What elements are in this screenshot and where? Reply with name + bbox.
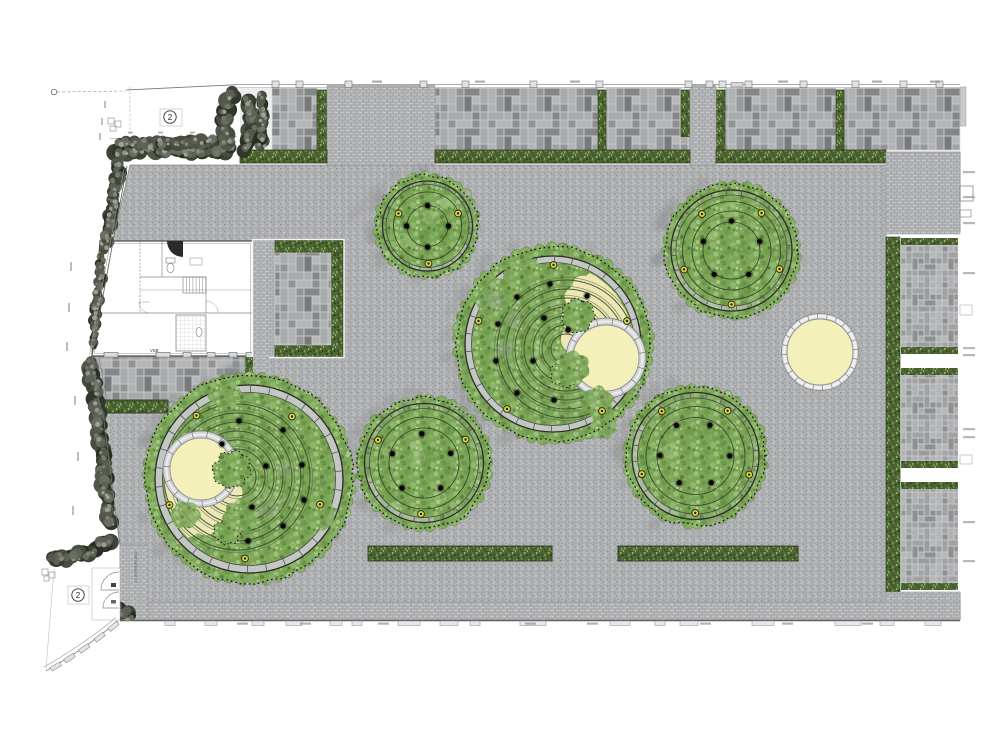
svg-text:2: 2 (168, 113, 173, 122)
svg-text:2: 2 (76, 591, 81, 600)
svg-text:VSB: VSB (150, 348, 159, 353)
svg-text:1:2 BURGERZONE: 1:2 BURGERZONE (134, 551, 138, 583)
